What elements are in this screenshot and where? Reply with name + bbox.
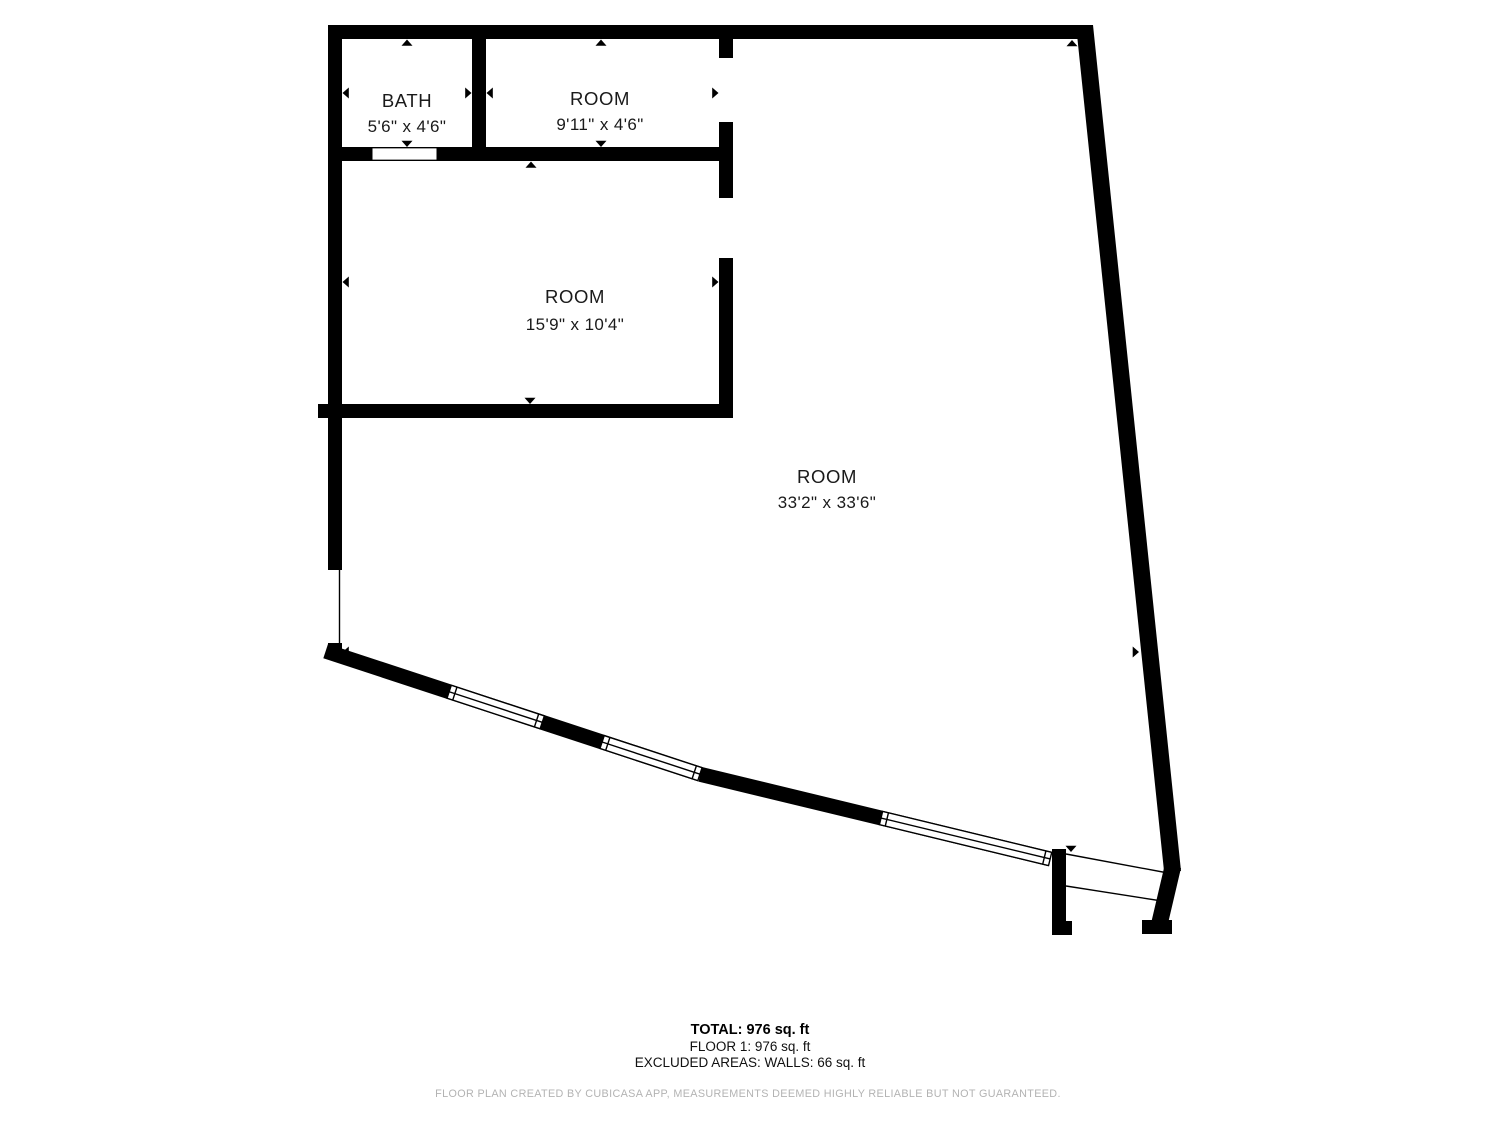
room-top: ROOM 9'11" x 4'6": [556, 88, 643, 134]
measure-arrows: [343, 40, 1140, 853]
wall-right-door-foot: [1142, 920, 1172, 934]
area-summary: TOTAL: 976 sq. ft FLOOR 1: 976 sq. ft EX…: [635, 1022, 866, 1070]
room-dimensions: 5'6" x 4'6": [368, 117, 447, 136]
measure-arrow-right-icon: [712, 277, 718, 288]
room-large: ROOM 33'2" x 33'6": [778, 466, 876, 512]
walls: [318, 25, 1181, 935]
floorplan-page: BATH 5'6" x 4'6" ROOM 9'11" x 4'6" ROOM …: [0, 0, 1500, 1125]
room-dimensions: 33'2" x 33'6": [778, 493, 876, 512]
room-middle: ROOM 15'9" x 10'4": [526, 286, 624, 334]
wall-bottom-segment-b: [698, 767, 1051, 866]
measure-arrow-right-icon: [1133, 647, 1139, 658]
room-dimensions: 15'9" x 10'4": [526, 315, 624, 334]
room-label: ROOM: [797, 466, 857, 487]
measure-arrow-left-icon: [343, 277, 349, 288]
total-area-text: TOTAL: 976 sq. ft: [691, 1022, 810, 1038]
wall-entrance-jamb-foot: [1052, 921, 1072, 935]
door-opening-bath: [373, 146, 437, 162]
floor-area-text: FLOOR 1: 976 sq. ft: [690, 1039, 811, 1054]
measure-arrow-up-icon: [402, 40, 413, 46]
measure-arrow-up-icon: [526, 162, 537, 168]
measure-arrow-left-icon: [343, 88, 349, 99]
measure-arrow-down-icon: [1066, 846, 1077, 852]
wall-bath-divider: [472, 39, 486, 161]
entrance-door: [1066, 854, 1168, 901]
wall-bottom-segment-a: [323, 644, 702, 781]
wall-right-slanted: [1076, 25, 1181, 871]
window: [600, 736, 702, 781]
measure-arrow-down-icon: [596, 141, 607, 147]
room-label: ROOM: [545, 286, 605, 307]
measure-arrow-left-icon: [487, 88, 493, 99]
room-label: ROOM: [570, 88, 630, 109]
measure-arrow-right-icon: [465, 88, 471, 99]
measure-arrow-up-icon: [1067, 40, 1078, 46]
room-bath: BATH 5'6" x 4'6": [368, 90, 447, 136]
room-dimensions: 9'11" x 4'6": [556, 115, 643, 134]
wall-room3-right: [719, 258, 733, 418]
wall-left: [328, 25, 342, 570]
wall-top: [328, 25, 1093, 39]
wall-room2-right-mid: [719, 122, 733, 198]
measure-arrow-up-icon: [596, 40, 607, 46]
wall-entrance-jamb: [1052, 849, 1066, 925]
room-label: BATH: [382, 90, 432, 111]
window: [447, 685, 544, 729]
wall-room3-bottom: [318, 404, 733, 418]
window: [879, 811, 1051, 865]
floorplan-svg: BATH 5'6" x 4'6" ROOM 9'11" x 4'6" ROOM …: [0, 0, 1500, 1125]
measure-arrow-down-icon: [525, 398, 536, 404]
wall-room2-right-upper: [719, 39, 733, 58]
disclaimer-text: FLOOR PLAN CREATED BY CUBICASA APP, MEAS…: [435, 1088, 1061, 1100]
excluded-areas-text: EXCLUDED AREAS: WALLS: 66 sq. ft: [635, 1055, 866, 1070]
measure-arrow-right-icon: [712, 88, 718, 99]
